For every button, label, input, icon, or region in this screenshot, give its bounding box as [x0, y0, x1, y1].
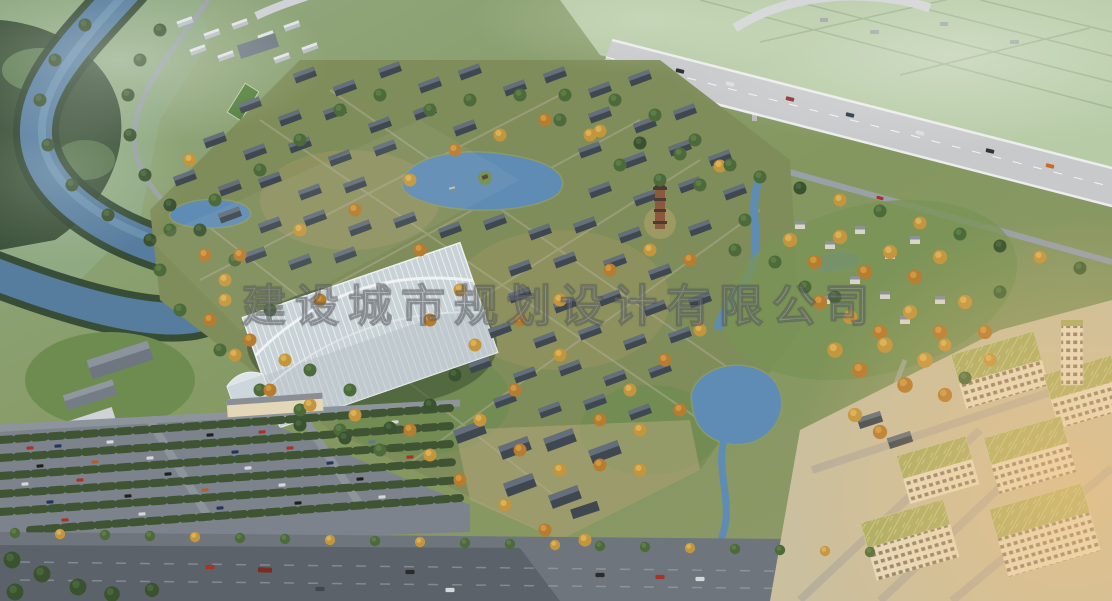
south-pond: [691, 365, 782, 445]
rendering-canvas: [0, 0, 1112, 601]
aerial-rendering-stage: 建设城市规划设计有限公司: [0, 0, 1112, 601]
